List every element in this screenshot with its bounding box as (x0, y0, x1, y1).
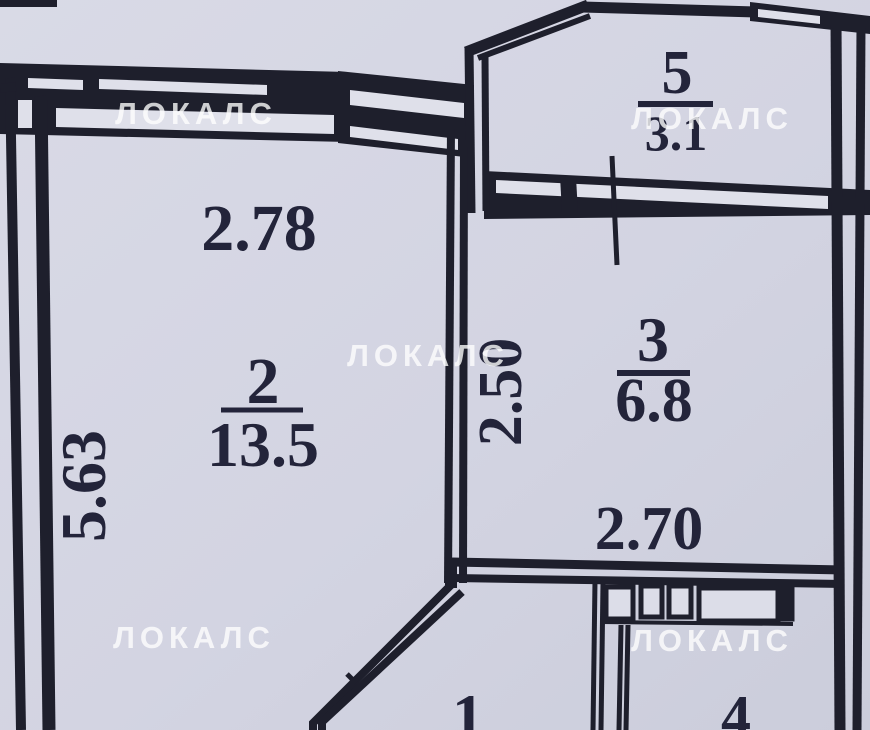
watermark-text: ЛОКАЛС (115, 96, 277, 131)
top-wall (582, 7, 756, 12)
duct-box-2 (641, 586, 662, 617)
room2-width-dimension: 2.78 (201, 192, 317, 265)
right-inner-wall (836, 22, 840, 730)
room1-right-wall-a (593, 581, 595, 730)
room3-width-dimension: 2.70 (595, 495, 704, 563)
balcony-left-wall-outer (469, 47, 471, 213)
watermark-text: ЛОКАЛС (113, 620, 275, 655)
left-inner-wall (41, 96, 49, 730)
watermark-text: ЛОКАЛС (347, 338, 509, 373)
duct-block-row (606, 584, 792, 621)
room3-number: 3 (637, 304, 669, 375)
right-outer-wall (857, 26, 861, 730)
duct-box-1 (606, 587, 633, 619)
room2-area: 13.5 (207, 409, 319, 480)
room2-depth-dimension: 5.63 (48, 430, 119, 542)
floor-plan: 2.78 2 13.5 5.63 5 3.1 2.50 3 6.8 2.70 1… (0, 0, 870, 730)
duct-box-3 (669, 586, 691, 617)
balcony-left-wall-inner (485, 56, 486, 211)
room3-area: 6.8 (615, 367, 693, 435)
room1-right-wall-b (601, 583, 603, 730)
room4-number: 4 (721, 684, 751, 730)
room4-left-wall-a (619, 625, 621, 730)
duct-solid-pier (779, 584, 792, 619)
room1-number: 1 (452, 681, 484, 730)
watermark-text: ЛОКАЛС (631, 623, 793, 658)
watermark-text: ЛОКАЛС (631, 101, 793, 136)
duct-box-4 (699, 588, 778, 621)
room2-number: 2 (247, 345, 280, 418)
room4-left-wall-b (626, 625, 628, 730)
floor-plan-drawing: 2.78 2 13.5 5.63 5 3.1 2.50 3 6.8 2.70 1… (0, 0, 870, 730)
room5-number: 5 (662, 39, 693, 107)
